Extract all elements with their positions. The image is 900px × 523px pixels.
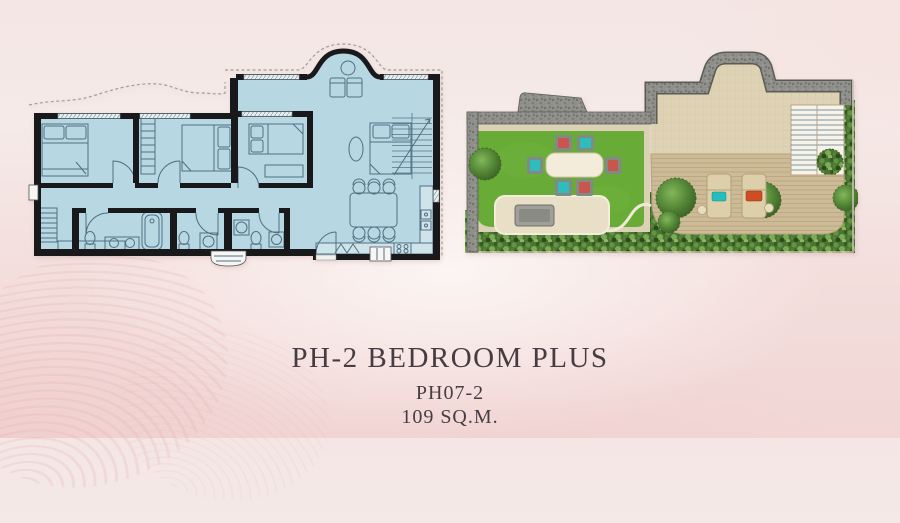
outdoor-chair-teal <box>555 179 572 196</box>
side-table <box>698 206 707 215</box>
plan-title: PH-2 BEDROOM PLUS <box>0 343 900 375</box>
plan-right-edge <box>852 80 854 254</box>
stair-shrub <box>817 149 843 175</box>
sun-lounger-1 <box>707 174 731 218</box>
outdoor-chair-teal <box>527 157 543 174</box>
interior-floor-plan <box>28 42 448 272</box>
patio <box>495 196 609 234</box>
outdoor-chair-red <box>605 157 621 174</box>
lounger-pillow-teal <box>712 192 726 201</box>
unit-code: PH07-2 <box>0 382 900 405</box>
lounger-pillow-red <box>746 191 762 201</box>
outdoor-chair-red <box>555 135 572 151</box>
side-table <box>765 204 774 213</box>
unit-area: 109 SQ.M. <box>0 406 900 429</box>
sun-lounger-2 <box>742 174 766 218</box>
outdoor-chair-red <box>576 179 593 196</box>
outdoor-chair-teal <box>577 135 594 151</box>
roof-terrace-plan <box>455 50 858 265</box>
caption-block: PH-2 BEDROOM PLUS PH07-2 109 SQ.M. <box>0 343 900 430</box>
terrace-staircase <box>791 105 844 175</box>
